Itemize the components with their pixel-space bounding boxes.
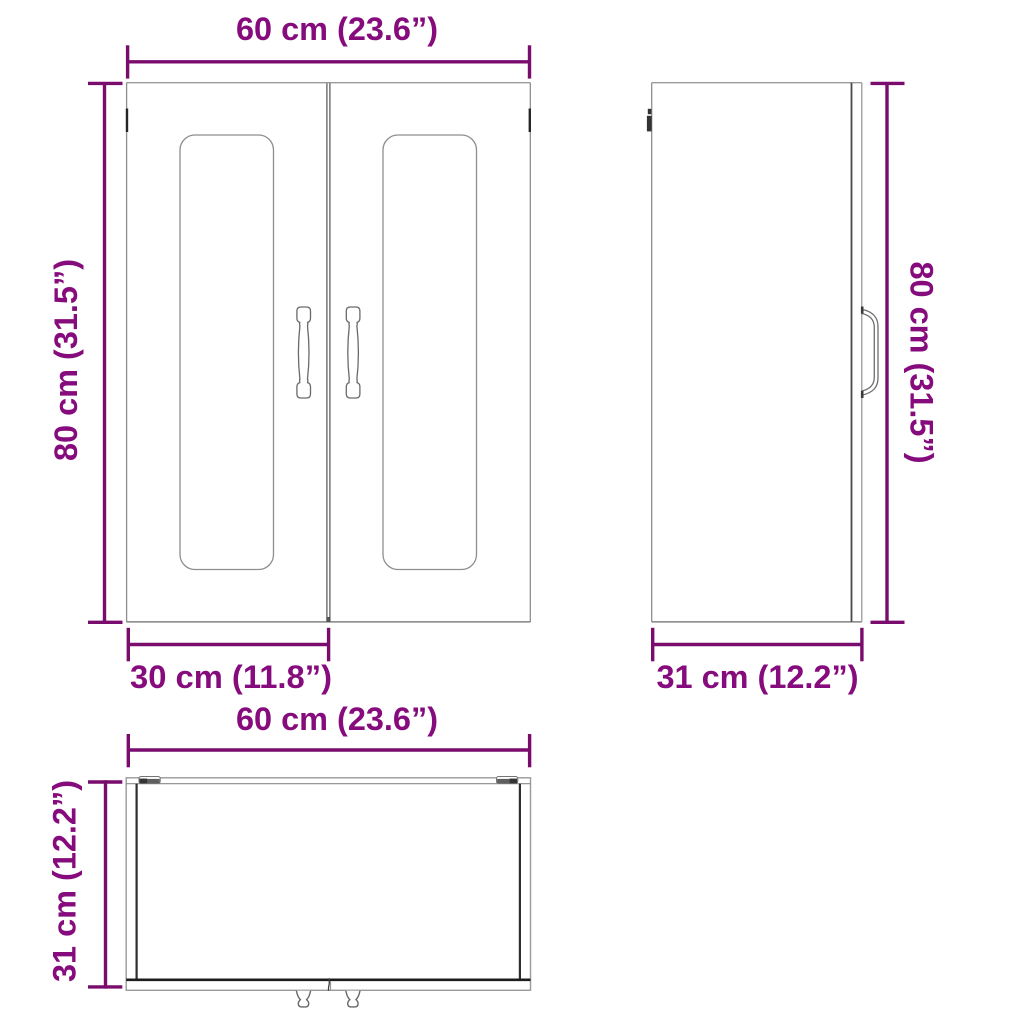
svg-text:30 cm (11.8”): 30 cm (11.8”) [130, 659, 332, 695]
svg-text:31 cm (12.2”): 31 cm (12.2”) [47, 780, 83, 982]
svg-text:60 cm (23.6”): 60 cm (23.6”) [236, 701, 438, 737]
svg-text:80 cm (31.5”): 80 cm (31.5”) [904, 262, 940, 464]
svg-text:31 cm (12.2”): 31 cm (12.2”) [657, 659, 859, 695]
svg-text:60 cm (23.6”): 60 cm (23.6”) [236, 11, 438, 47]
svg-text:80 cm (31.5”): 80 cm (31.5”) [48, 259, 84, 461]
